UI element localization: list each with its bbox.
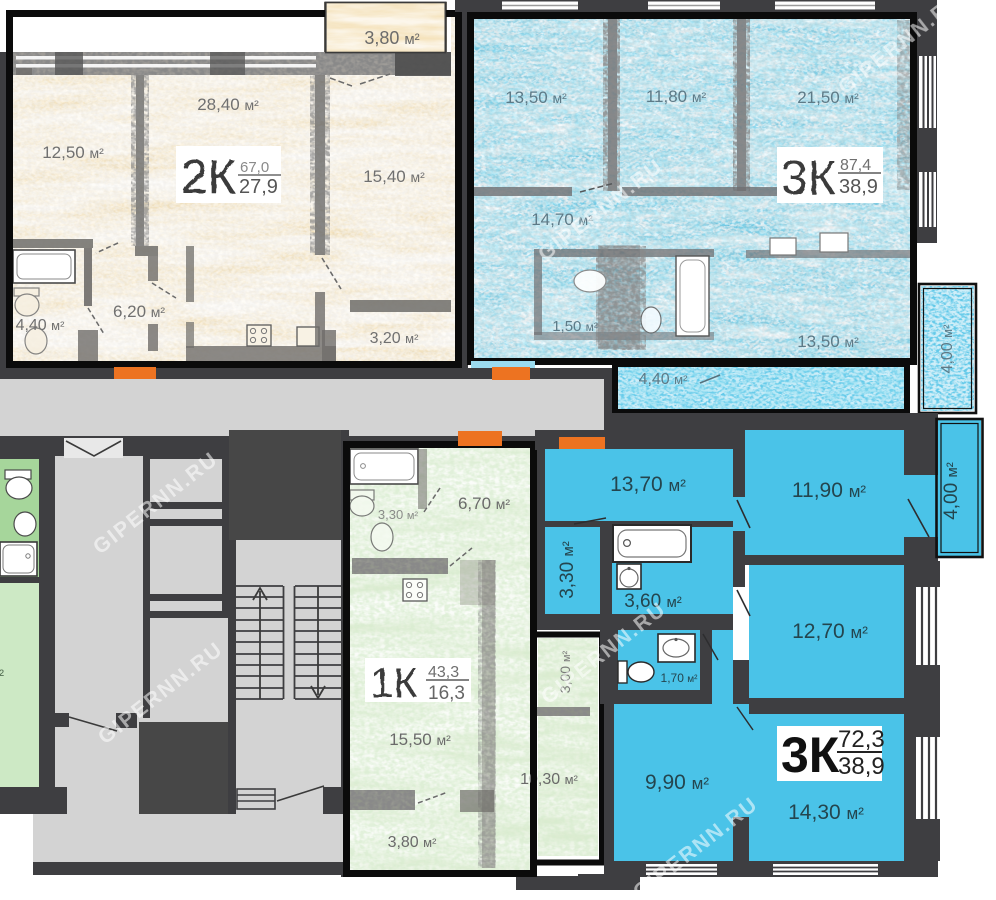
svg-text:27,9: 27,9 bbox=[239, 176, 278, 198]
svg-text:3,20 м²: 3,20 м² bbox=[370, 330, 420, 347]
svg-text:67,0: 67,0 bbox=[240, 159, 269, 176]
svg-text:4,40 м²: 4,40 м² bbox=[16, 317, 66, 334]
svg-text:²: ² bbox=[0, 667, 4, 684]
svg-text:10,30 м²: 10,30 м² bbox=[520, 771, 578, 788]
svg-text:6,70 м²: 6,70 м² bbox=[458, 494, 510, 513]
svg-text:4,00 м²: 4,00 м² bbox=[941, 462, 962, 520]
svg-text:38,9: 38,9 bbox=[838, 753, 885, 780]
svg-text:3,80 м²: 3,80 м² bbox=[364, 28, 419, 48]
svg-text:14,30 м²: 14,30 м² bbox=[788, 801, 864, 824]
svg-text:38,9: 38,9 bbox=[839, 176, 878, 198]
svg-text:28,40 м²: 28,40 м² bbox=[197, 95, 259, 114]
svg-text:11,80 м²: 11,80 м² bbox=[646, 87, 707, 106]
svg-text:12,50 м²: 12,50 м² bbox=[42, 143, 104, 162]
svg-text:1,70 м²: 1,70 м² bbox=[661, 671, 699, 685]
svg-text:15,50 м²: 15,50 м² bbox=[389, 730, 451, 749]
svg-text:12,70 м²: 12,70 м² bbox=[792, 620, 868, 643]
svg-text:16,3: 16,3 bbox=[428, 683, 465, 704]
svg-text:13,50 м²: 13,50 м² bbox=[797, 332, 859, 351]
svg-text:1К: 1К bbox=[370, 659, 418, 706]
svg-text:15,40 м²: 15,40 м² bbox=[363, 167, 425, 186]
svg-text:87,4: 87,4 bbox=[840, 157, 871, 174]
svg-text:43,3: 43,3 bbox=[428, 664, 459, 681]
svg-text:4,00 м²: 4,00 м² bbox=[939, 324, 956, 374]
svg-text:1,50 м²: 1,50 м² bbox=[552, 318, 598, 335]
svg-text:11,90 м²: 11,90 м² bbox=[792, 479, 867, 502]
svg-text:9,90 м²: 9,90 м² bbox=[645, 771, 709, 794]
svg-text:72,3: 72,3 bbox=[838, 726, 885, 753]
svg-text:6,20 м²: 6,20 м² bbox=[113, 302, 165, 321]
svg-text:3,80 м²: 3,80 м² bbox=[388, 834, 438, 851]
svg-text:3,30 м²: 3,30 м² bbox=[378, 507, 418, 522]
svg-text:3К: 3К bbox=[781, 727, 840, 783]
svg-text:13,70 м²: 13,70 м² bbox=[610, 473, 686, 496]
svg-text:3,30 м²: 3,30 м² bbox=[557, 541, 578, 599]
svg-text:3К: 3К bbox=[781, 152, 836, 205]
svg-text:4,40 м²: 4,40 м² bbox=[639, 371, 689, 388]
svg-text:2К: 2К bbox=[181, 151, 236, 204]
svg-text:13,50 м²: 13,50 м² bbox=[505, 88, 567, 107]
